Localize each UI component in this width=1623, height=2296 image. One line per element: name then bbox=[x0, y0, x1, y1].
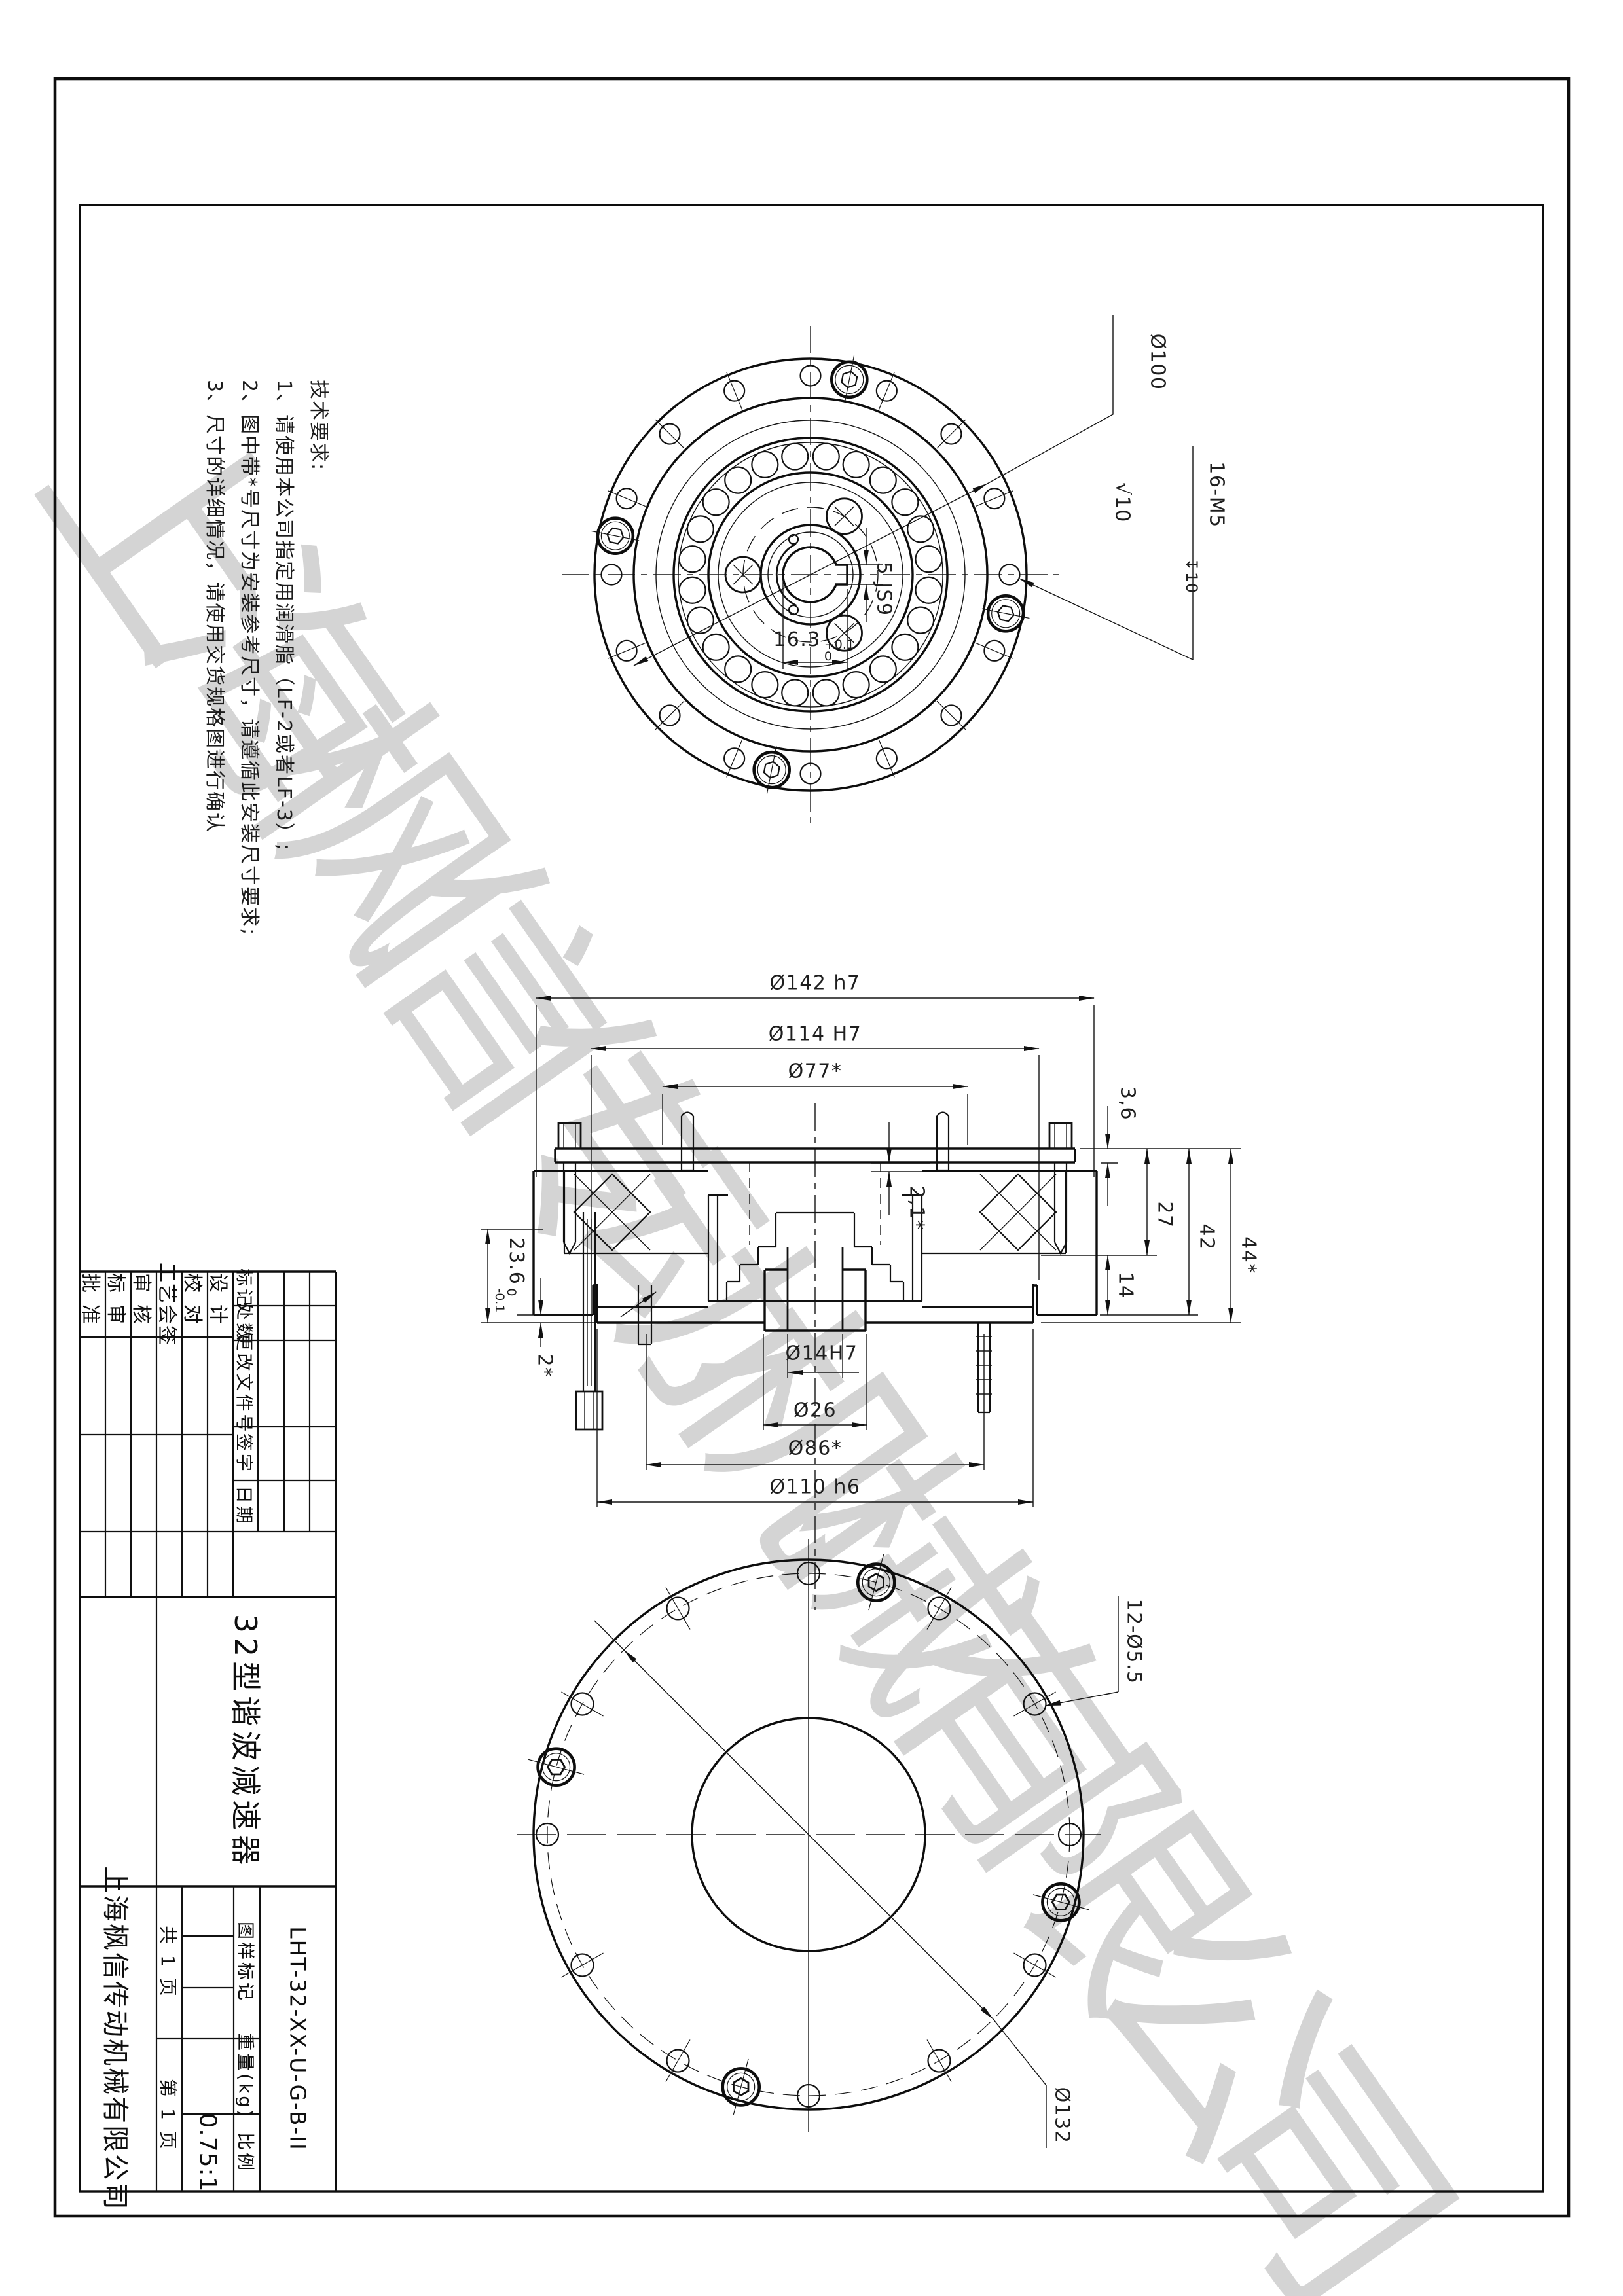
weight-label: 重量(kg) bbox=[234, 2033, 260, 2119]
part-name: 32型谐波减速器 bbox=[226, 1614, 269, 1870]
dim-proj2: 2* bbox=[534, 1354, 556, 1378]
bottom-view bbox=[517, 1539, 1118, 2148]
dim-outer-dia: Ø142 h7 bbox=[769, 972, 860, 995]
titleblock-rev-sign-label: 签字 bbox=[233, 1433, 259, 1474]
dim-thread-spec: 16-M5 bbox=[1205, 461, 1228, 528]
company-name: 上海枫信传动机械有限公司 bbox=[98, 1866, 137, 2212]
stamp-label: 图样标记 bbox=[234, 1922, 260, 2003]
dim-key-depth: 16.3+0.10 bbox=[773, 628, 854, 662]
dim-holes: 12-Ø5.5 bbox=[1123, 1599, 1146, 1685]
titleblock-approve-label: 批准 bbox=[78, 1273, 107, 1336]
dim-depth236: 23.60-0.1 bbox=[494, 1238, 528, 1313]
dim-bolt-circle: Ø100 bbox=[1146, 334, 1169, 391]
pages-total: 共 1 页 bbox=[156, 1926, 182, 1999]
titleblock-process-sign-label: 工艺会签 bbox=[155, 1263, 183, 1346]
dim-hole-circle: Ø132 bbox=[1051, 2087, 1074, 2144]
technical-requirements: 技术要求: 1、请使用本公司指定用润滑脂（LF-2或者LF-3）; 2、图中带*… bbox=[194, 380, 336, 975]
dim-h42: 42 bbox=[1195, 1223, 1218, 1250]
surface-finish-icon: √ bbox=[1111, 482, 1134, 496]
tech-req-item: 2、图中带*号尺寸为安装参考尺寸，请遵循此安装尺寸要求; bbox=[232, 380, 266, 975]
tech-req-title: 技术要求: bbox=[301, 380, 336, 975]
titleblock-design-label: 设计 bbox=[206, 1273, 234, 1336]
titleblock-rev-date-label: 日期 bbox=[233, 1486, 259, 1526]
titleblock-review-label: 审核 bbox=[129, 1273, 158, 1336]
scale-value: 0.75:1 bbox=[194, 2113, 221, 2192]
section-fasteners bbox=[576, 1212, 992, 1429]
dim-h27: 27 bbox=[1154, 1201, 1176, 1228]
dim-flange-thk: 3,6 bbox=[1116, 1086, 1139, 1121]
dim-hub-dia: Ø26 bbox=[793, 1399, 837, 1422]
dim-key-width: 5 JS9 bbox=[873, 562, 896, 616]
tech-req-item: 1、请使用本公司指定用润滑脂（LF-2或者LF-3）; bbox=[266, 380, 301, 975]
titleblock-proof-label: 校对 bbox=[180, 1273, 209, 1336]
dim-h44: 44* bbox=[1237, 1236, 1260, 1274]
drawing-number: LHT-32-XX-U-G-B-II bbox=[285, 1926, 311, 2151]
dim-pilot-dia: Ø114 H7 bbox=[769, 1023, 862, 1046]
dim-h14: 14 bbox=[1114, 1272, 1137, 1299]
dim-surface-finish: √10 bbox=[1111, 482, 1134, 523]
page-number: 第 1 页 bbox=[156, 2079, 182, 2152]
titleblock-rev-doc-label: 更改文件号 bbox=[233, 1333, 259, 1435]
titleblock-std-review-label: 标审 bbox=[103, 1273, 132, 1336]
depth-icon: ↧ bbox=[1182, 558, 1201, 572]
dim-thread-depth: ↧10 bbox=[1182, 558, 1201, 594]
drawing-sheet: 上海枫信传动机械有限公司 bbox=[0, 0, 1623, 2296]
tech-req-item: 3、尺寸的详细情况，请使用交货规格图进行确认 bbox=[197, 380, 232, 975]
dim-bore-dia: Ø14H7 bbox=[786, 1342, 858, 1365]
scale-label: 比例 bbox=[234, 2132, 260, 2173]
section-half bbox=[534, 1113, 815, 1331]
dim-ref-dia: Ø77* bbox=[788, 1060, 843, 1083]
section-half bbox=[815, 1113, 1097, 1331]
dim-gap: 2,1* bbox=[905, 1186, 928, 1231]
dim-bolt-circle-out: Ø86* bbox=[788, 1437, 843, 1460]
dim-spigot-dia: Ø110 h6 bbox=[769, 1476, 860, 1499]
